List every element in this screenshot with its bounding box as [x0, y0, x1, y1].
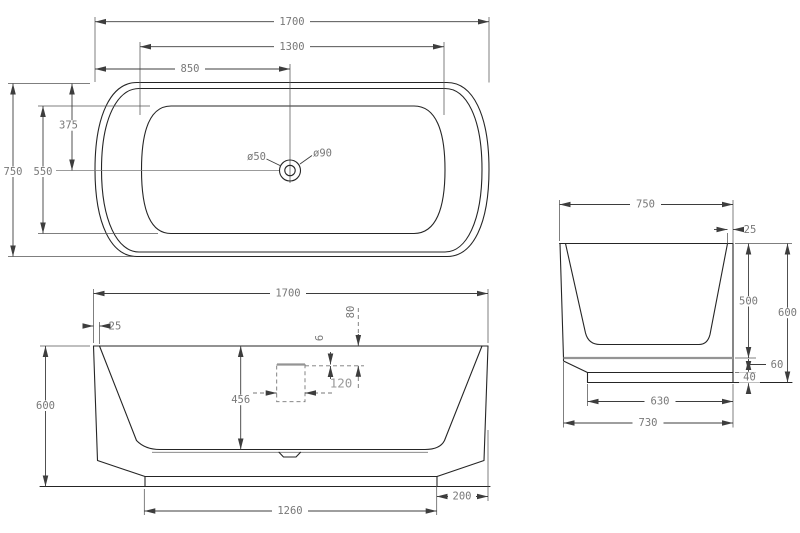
dim-front-overflow-drop: 80	[345, 306, 357, 319]
dim-front-overall-length: 1700	[275, 288, 300, 300]
dim-front-overall-height: 600	[36, 400, 55, 412]
front-view: 1700 25 600 456 120 6 80	[34, 288, 491, 518]
drain-flange-leader	[300, 156, 312, 165]
dim-top-basin-length: 1300	[279, 41, 304, 53]
dim-side-shell-gap: 60	[771, 359, 784, 371]
bathtub-technical-drawing: ø50 ø90 1700 1300 850 750 550 375	[0, 0, 800, 533]
dim-side-base-height: 40	[743, 372, 756, 384]
dim-top-drain-offset-y: 375	[59, 120, 78, 132]
drain-hole-leader	[267, 159, 282, 166]
dim-front-overflow-slit: 6	[314, 335, 326, 341]
side-view: 750 25 500 60 40 600 630	[560, 199, 800, 430]
dim-drain-flange: ø90	[313, 148, 332, 160]
dim-side-inner-depth: 500	[739, 296, 758, 308]
dim-side-rim-thickness: 25	[744, 224, 757, 236]
overflow-slot-dashed-box	[277, 365, 305, 402]
dim-side-overall-width: 750	[636, 199, 655, 211]
dim-front-overflow-width: 120	[330, 376, 353, 391]
dim-front-rim-thickness: 25	[109, 321, 122, 333]
dim-side-base-width: 630	[651, 396, 670, 408]
top-view: ø50 ø90 1700 1300 850 750 550 375	[1, 16, 489, 257]
front-outer-left	[94, 346, 146, 477]
side-outer-left	[560, 244, 588, 373]
front-drain-bump	[279, 452, 301, 457]
dim-drain-hole: ø50	[247, 151, 266, 163]
dim-top-drain-offset-x: 850	[181, 63, 200, 75]
dim-front-base-length: 1260	[277, 505, 302, 517]
dim-front-inner-depth: 456	[231, 394, 250, 406]
drawing-canvas: ø50 ø90 1700 1300 850 750 550 375	[0, 0, 800, 533]
dim-top-overall-length: 1700	[279, 16, 304, 28]
dim-top-overall-width: 750	[4, 166, 23, 178]
dim-front-base-inset: 200	[453, 491, 472, 503]
dim-top-basin-width: 550	[34, 166, 53, 178]
dim-side-bottom-width: 730	[639, 417, 658, 429]
front-outer-right	[437, 346, 488, 477]
side-inner-basin	[566, 244, 728, 345]
basin-outline	[142, 106, 446, 234]
front-inner-basin	[100, 346, 483, 450]
dim-side-overall-height: 600	[778, 307, 797, 319]
tub-outer-rim-outline	[95, 83, 489, 257]
